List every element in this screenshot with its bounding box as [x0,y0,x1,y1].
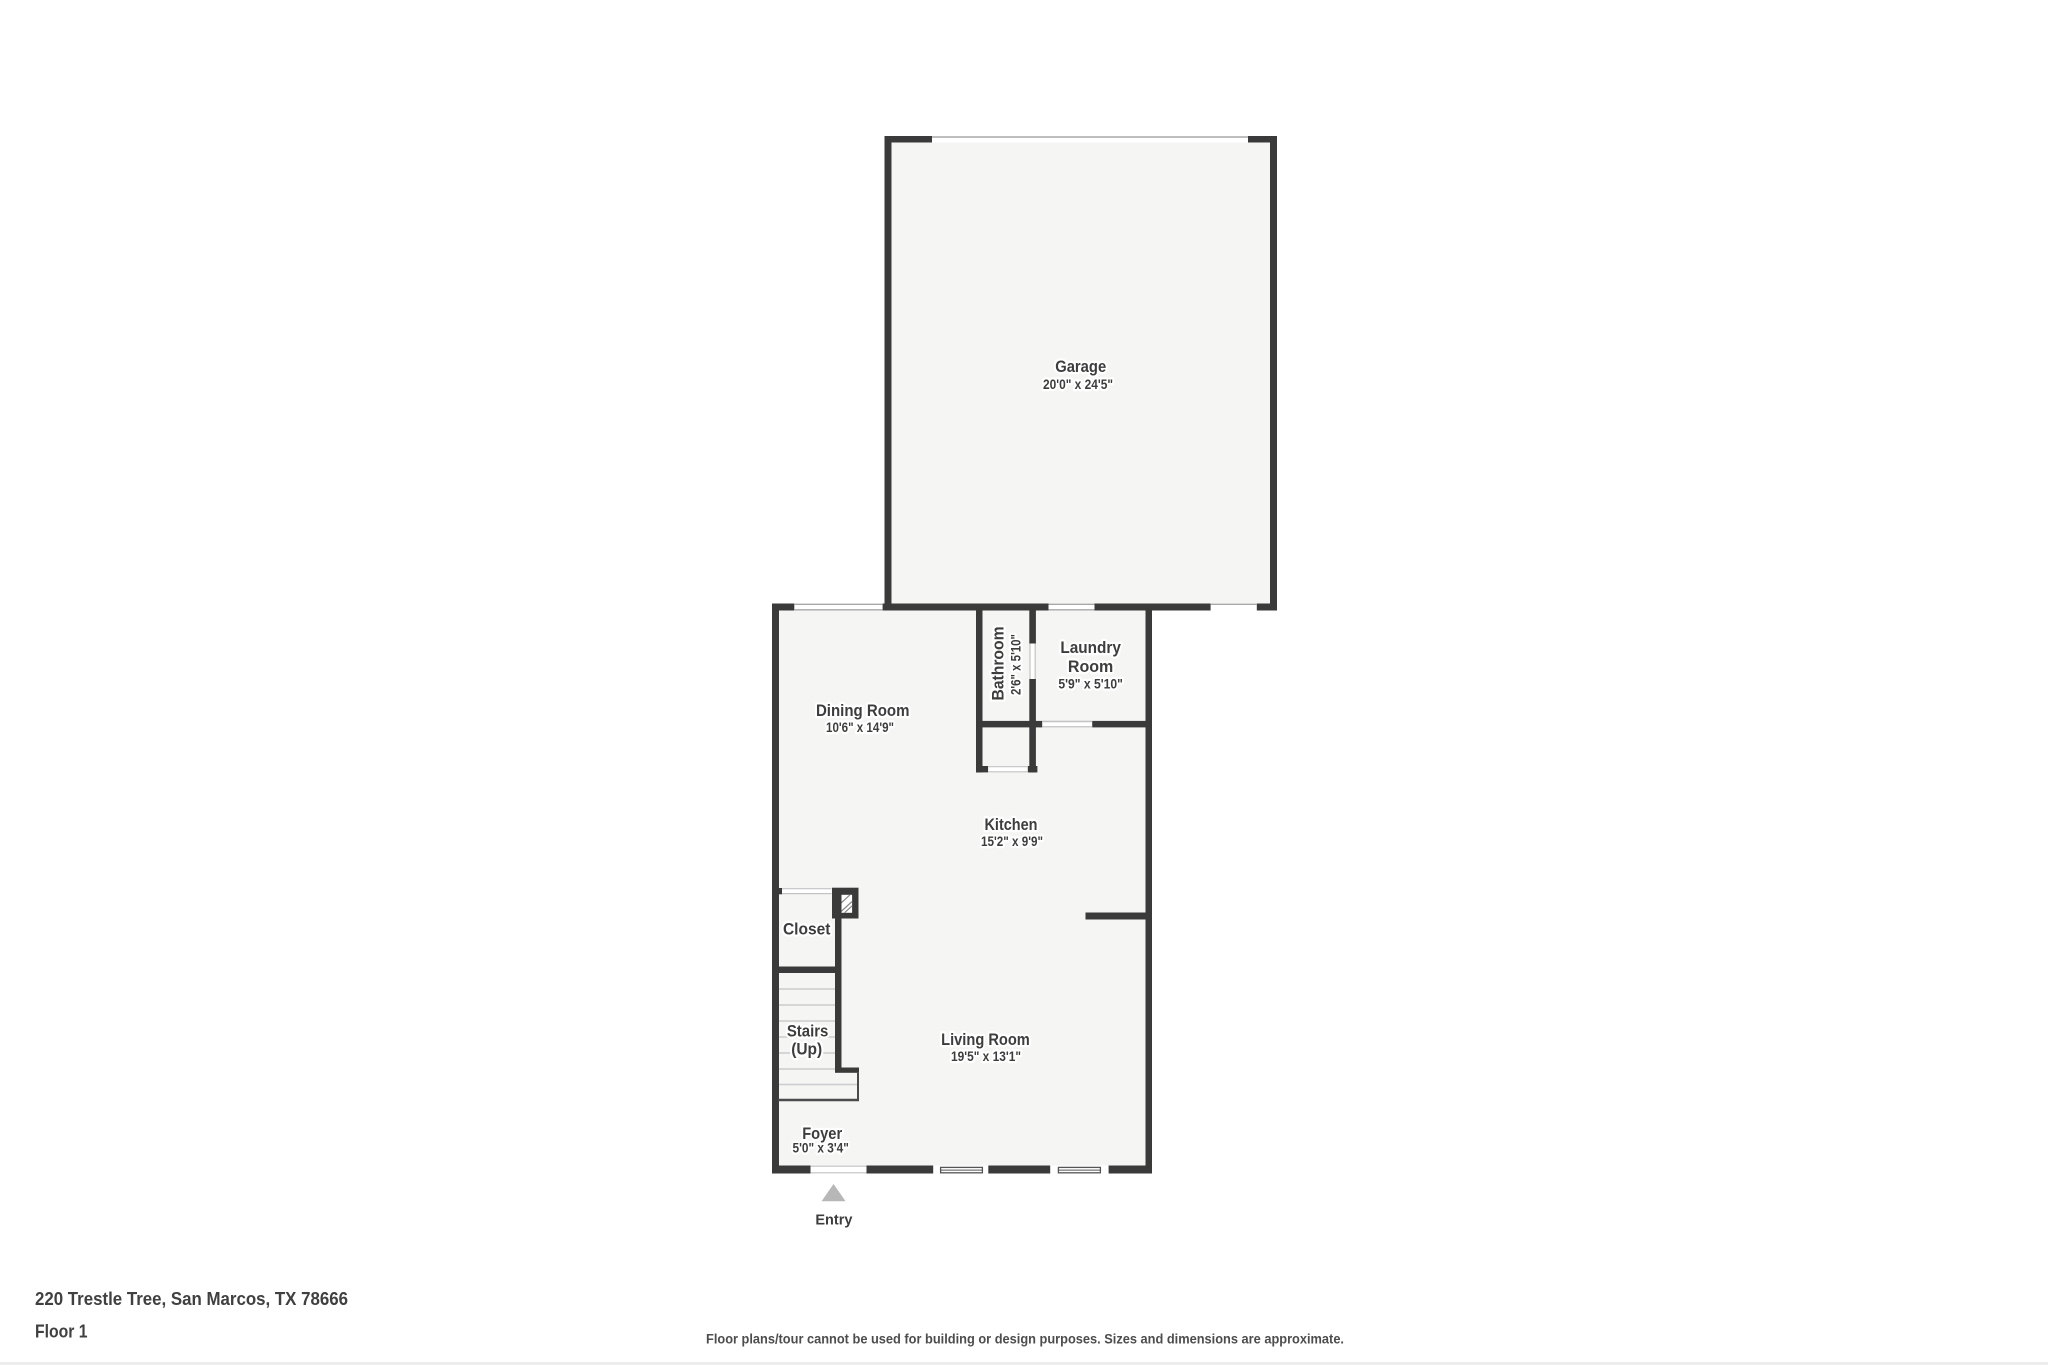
svg-text:Bathroom: Bathroom [989,627,1008,701]
svg-text:19'5" x 13'1": 19'5" x 13'1" [951,1048,1021,1064]
svg-text:Floor plans/tour cannot be use: Floor plans/tour cannot be used for buil… [706,1331,1344,1347]
svg-text:Room: Room [1068,657,1113,676]
svg-text:5'9" x 5'10": 5'9" x 5'10" [1058,676,1123,692]
svg-text:2'6" x 5'10": 2'6" x 5'10" [1008,634,1024,695]
svg-text:Kitchen: Kitchen [985,815,1038,834]
svg-text:20'0" x 24'5": 20'0" x 24'5" [1043,376,1113,392]
svg-text:Entry: Entry [815,1212,853,1229]
svg-text:(Up): (Up) [791,1040,822,1059]
svg-text:Floor 1: Floor 1 [35,1322,88,1342]
svg-text:Garage: Garage [1055,357,1106,376]
svg-text:Stairs: Stairs [787,1021,829,1040]
svg-text:Closet: Closet [783,919,831,938]
svg-text:15'2" x 9'9": 15'2" x 9'9" [981,833,1043,849]
svg-text:Laundry: Laundry [1060,638,1121,657]
svg-text:220 Trestle Tree, San Marcos,: 220 Trestle Tree, San Marcos, TX 78666 [35,1289,348,1309]
svg-text:Dining Room: Dining Room [816,701,910,720]
svg-text:10'6" x 14'9": 10'6" x 14'9" [826,719,894,735]
svg-text:Living Room: Living Room [941,1030,1030,1049]
svg-text:5'0" x 3'4": 5'0" x 3'4" [793,1139,849,1155]
